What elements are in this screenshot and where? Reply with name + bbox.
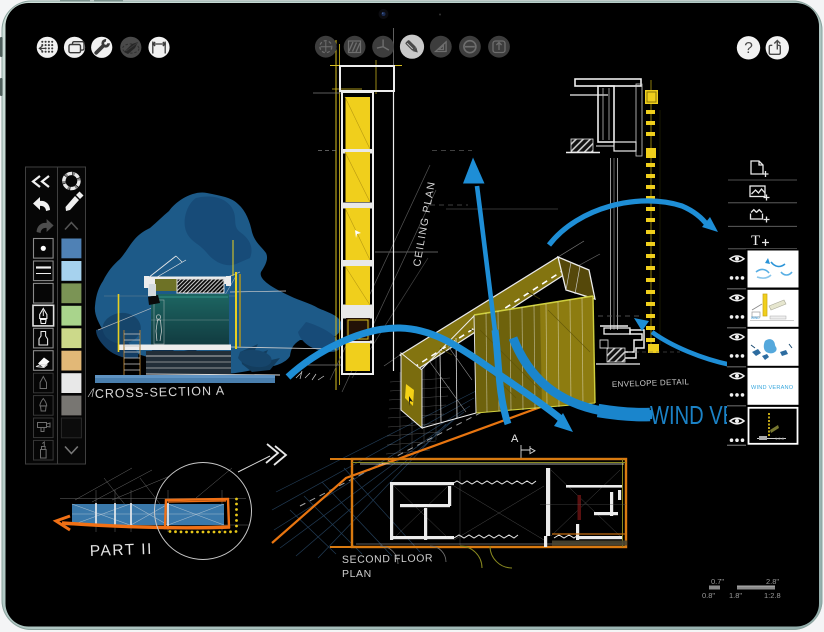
- svg-text:PLAN: PLAN: [342, 568, 372, 580]
- svg-text:T: T: [751, 233, 760, 249]
- svg-text:1:2.8: 1:2.8: [775, 436, 785, 441]
- svg-text:1:2.8: 1:2.8: [764, 591, 781, 600]
- svg-text:?: ?: [744, 40, 753, 57]
- svg-text:PART II: PART II: [90, 541, 154, 560]
- svg-text:WIND VERANO: WIND VERANO: [751, 385, 794, 391]
- svg-text:SECOND FLOOR: SECOND FLOOR: [342, 552, 433, 566]
- svg-text:A: A: [511, 433, 519, 445]
- svg-text:WIND: WIND: [751, 316, 760, 320]
- svg-text:2.8": 2.8": [766, 577, 779, 586]
- svg-text:0.8": 0.8": [702, 591, 715, 600]
- svg-text:0.7": 0.7": [711, 577, 724, 586]
- svg-text:1.8": 1.8": [729, 591, 742, 600]
